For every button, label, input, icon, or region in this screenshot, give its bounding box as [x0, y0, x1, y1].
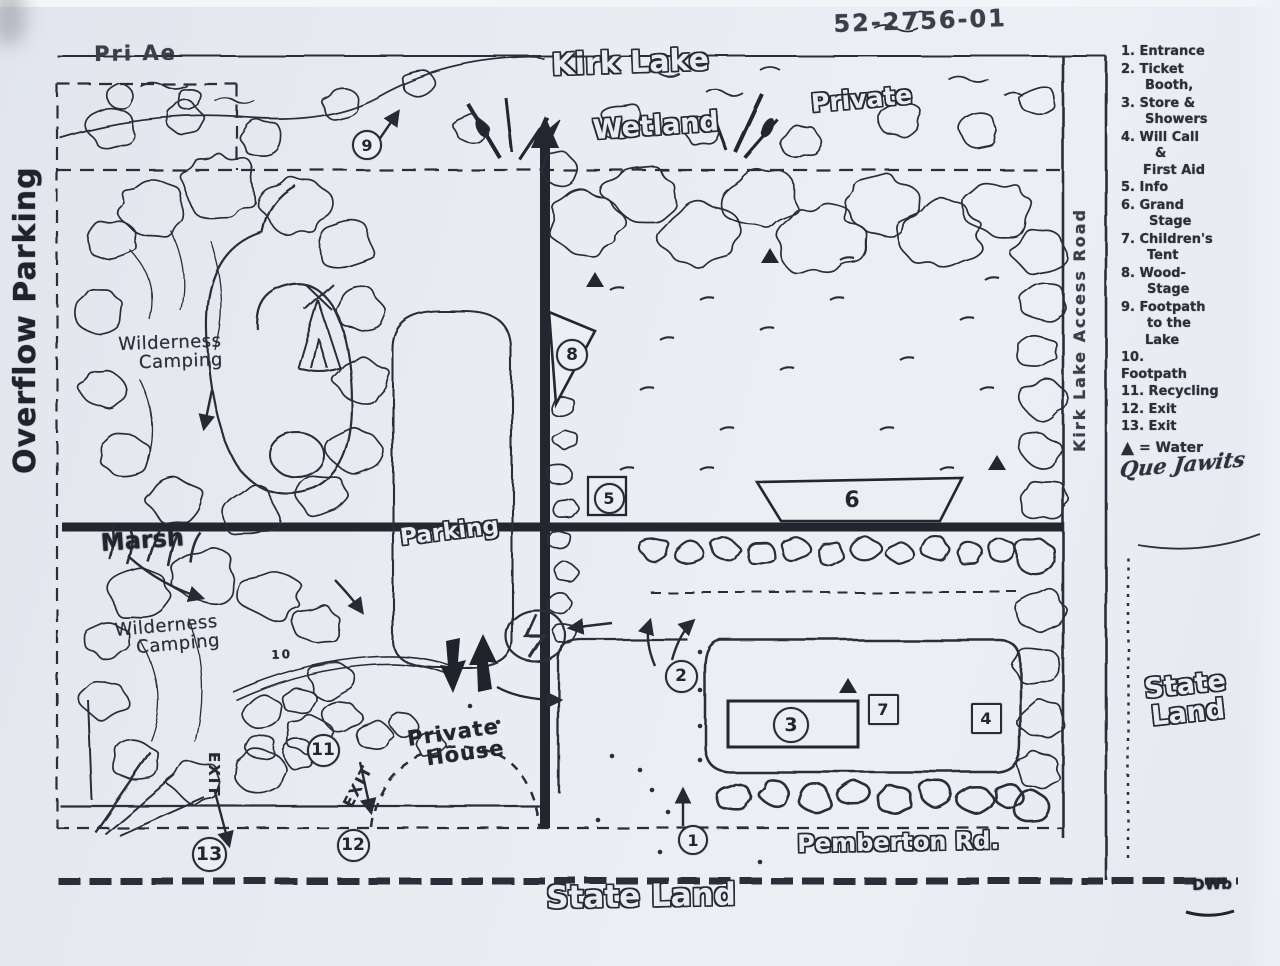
label-kirk-lake: Kirk Lake — [551, 45, 710, 82]
grass-mark — [700, 297, 714, 300]
map-frame — [57, 56, 1238, 881]
water-triangle — [586, 272, 604, 287]
legend-item-childrens-tent: 7. Children'sTent — [1121, 232, 1251, 265]
legend-item-will-call-first-aid: 4. Will Call&First Aid — [1121, 130, 1251, 180]
tree-blob — [243, 695, 282, 729]
legend-line: Stage — [1147, 282, 1251, 299]
label-state-land-south: State Land — [546, 879, 736, 915]
tree-blob — [819, 542, 843, 565]
ink-dot — [610, 754, 614, 758]
tree-blob — [676, 542, 705, 565]
label-state-land-east: StateLand — [1143, 667, 1230, 731]
tree-blob — [717, 784, 750, 810]
tree-blob — [963, 184, 1032, 238]
tree-blob — [108, 569, 171, 617]
label-line: Overflow Parking — [10, 166, 41, 474]
tree-blob — [336, 286, 386, 331]
grass-mark — [960, 317, 974, 320]
legend-line: Footpath — [1121, 367, 1251, 384]
grass-mark — [980, 387, 994, 390]
tree-blob — [711, 537, 740, 561]
water-triangle — [761, 248, 779, 263]
legend-line: 3. Store & — [1121, 96, 1251, 113]
tree-blob — [1019, 433, 1061, 468]
water-triangle-icon: ▲ — [1121, 438, 1134, 458]
tree-blob — [1015, 539, 1055, 575]
tree-blob — [245, 736, 275, 759]
map-marker-7: 7 — [868, 694, 899, 725]
ink-dot — [638, 768, 642, 772]
tree-blob — [837, 781, 870, 804]
tree-blob — [101, 435, 151, 477]
label-footpath-10-label: 10 — [271, 648, 292, 662]
tree-blob — [551, 396, 574, 416]
label-line: Kirk Lake — [551, 45, 710, 82]
label-line: Pemberton Rd. — [797, 828, 1000, 856]
tree-blob — [78, 682, 130, 722]
grass-mark — [720, 427, 734, 430]
tree-blob — [553, 431, 578, 450]
legend-line: 12. Exit — [1121, 402, 1251, 419]
label-line: 10 — [271, 648, 292, 662]
tree-blob — [332, 356, 389, 404]
ink-dot — [468, 704, 472, 708]
tree-blob — [292, 605, 338, 643]
tree-blob — [282, 687, 316, 713]
tree-blob — [235, 748, 286, 794]
tree-blob — [325, 428, 385, 475]
tree-blob — [958, 543, 983, 565]
tree-blob — [356, 720, 393, 748]
tree-blob — [1020, 283, 1067, 321]
ink-dot — [698, 758, 702, 762]
ink-dot — [758, 860, 762, 864]
tree-blob — [1016, 752, 1060, 789]
signature: Que Jawits — [1119, 451, 1251, 479]
label-line: 52-2756-01 — [833, 6, 1007, 37]
bold-arrows — [440, 634, 497, 693]
tree-blob — [657, 200, 742, 269]
ink-dot — [698, 688, 702, 692]
tree-blob — [758, 779, 788, 806]
signature-flourish — [1138, 534, 1260, 549]
tree-blob — [957, 787, 994, 814]
tree-blob — [896, 198, 982, 267]
map-marker-4: 4 — [971, 703, 1002, 734]
legend-item-store-showers: 3. Store &Showers — [1121, 96, 1251, 129]
tree-blob — [1018, 86, 1054, 115]
grass-mark — [780, 367, 794, 370]
tree-blob — [548, 531, 570, 548]
water-triangle — [839, 678, 857, 693]
tree-blob — [295, 476, 348, 516]
grass-mark — [620, 467, 634, 470]
legend-item-grand-stage: 6. GrandStage — [1121, 198, 1251, 231]
label-marsh: Marsh — [100, 525, 185, 556]
legend: 1. Entrance2. TicketBooth,3. Store &Show… — [1121, 44, 1251, 479]
legend-item-wood-stage: 8. Wood-Stage — [1121, 266, 1251, 299]
label-line: EXIT — [205, 752, 221, 798]
grass-mark — [700, 467, 714, 470]
grass-mark — [660, 337, 674, 340]
tree-blob — [549, 190, 625, 257]
legend-line: 5. Info — [1121, 180, 1251, 197]
ink-dot — [698, 724, 702, 728]
artist-mark-scribble — [1186, 911, 1234, 915]
tree-blob — [850, 536, 881, 559]
tree-blob — [776, 204, 865, 274]
map-marker-8: 8 — [556, 339, 588, 371]
legend-item-recycling: 11. Recycling — [1121, 384, 1251, 401]
tree-blob — [547, 465, 572, 483]
tree-blob — [322, 702, 363, 732]
legend-line: 1. Entrance — [1121, 44, 1251, 61]
legend-item-ticket-booth: 2. TicketBooth, — [1121, 62, 1251, 95]
map-marker-12: 12 — [337, 829, 370, 862]
water-triangle — [988, 455, 1006, 470]
tree-blob — [307, 662, 355, 700]
legend-line: Stage — [1149, 214, 1251, 231]
label-line: DWb — [1192, 877, 1232, 894]
legend-line: First Aid — [1143, 163, 1251, 180]
ink-dot — [650, 788, 654, 792]
label-private-partial: Pri Ae — [94, 43, 177, 66]
legend-line: 4. Will Call — [1121, 130, 1251, 147]
tree-blob — [1017, 699, 1065, 738]
tree-blob — [553, 498, 579, 517]
legend-line: 13. Exit — [1121, 419, 1251, 436]
label-line: Marsh — [100, 525, 185, 556]
tree-blob — [960, 114, 997, 148]
legend-line: Showers — [1145, 112, 1251, 129]
legend-item-footpath-to-lake: 9. Footpathto theLake — [1121, 300, 1251, 350]
tree-blob — [885, 542, 915, 564]
map-marker-13: 13 — [192, 837, 227, 872]
tree-blob — [181, 155, 255, 218]
legend-item-footpath: 10.Footpath — [1121, 350, 1251, 383]
ink-dot — [698, 650, 702, 654]
legend-line: Booth, — [1145, 78, 1251, 95]
map-marker-9: 9 — [352, 130, 382, 160]
grass-mark — [900, 357, 914, 360]
legend-line: 10. — [1121, 350, 1251, 367]
tree-blob — [547, 593, 573, 615]
legend-line: 11. Recycling — [1121, 384, 1251, 401]
tree-blob — [747, 542, 774, 564]
tree-blob — [1018, 378, 1069, 421]
legend-line: 2. Ticket — [1121, 62, 1251, 79]
map-marker-2: 2 — [665, 660, 698, 693]
tree-blob — [257, 177, 334, 236]
tree-blob — [85, 108, 135, 148]
map-marker-1: 1 — [678, 825, 708, 855]
legend-line: to the — [1147, 316, 1251, 333]
tree-blob — [601, 167, 676, 222]
legend-item-entrance: 1. Entrance — [1121, 44, 1251, 61]
legend-line: Lake — [1145, 333, 1251, 350]
tree-blob — [921, 536, 950, 561]
tree-blob — [117, 180, 183, 237]
label-ref-number: 52-2756-01 — [833, 6, 1007, 37]
legend-item-exit-12: 12. Exit — [1121, 402, 1251, 419]
tree-blob — [844, 173, 919, 236]
legend-line: 7. Children's — [1121, 232, 1251, 249]
main-roads — [62, 116, 1063, 828]
tree-blob — [320, 222, 374, 267]
hand-drawn-festival-map-scan: 52-2756-01Kirk LakeWetlandPrivatePri AeO… — [0, 0, 1280, 966]
tree-blob — [171, 547, 233, 603]
tree-blob — [78, 372, 128, 409]
label-pemberton-rd: Pemberton Rd. — [797, 828, 1000, 856]
tree-blob — [798, 783, 831, 812]
tree-blob — [639, 540, 669, 563]
map-marker-3: 3 — [773, 707, 809, 743]
tree-blob — [780, 124, 822, 156]
label-exit-west: EXIT — [205, 752, 221, 798]
map-marker-11: 11 — [307, 734, 340, 767]
tree-blob — [989, 539, 1015, 562]
tree-blob — [107, 83, 133, 108]
tree-blob — [240, 120, 281, 156]
legend-line: 8. Wood- — [1121, 266, 1251, 283]
legend-item-info: 5. Info — [1121, 180, 1251, 197]
legend-line: & — [1155, 146, 1251, 163]
grass-mark — [985, 277, 999, 280]
tree-blob — [878, 785, 911, 813]
legend-line: 9. Footpath — [1121, 300, 1251, 317]
tree-blob — [555, 561, 579, 581]
label-line: State Land — [546, 879, 736, 915]
ink-dot — [658, 850, 662, 854]
tree-blob — [920, 781, 952, 808]
ink-dot — [666, 810, 670, 814]
tree-clusters — [76, 71, 1069, 820]
grass-mark — [640, 387, 654, 390]
grass-mark — [940, 467, 954, 470]
grass-mark — [830, 297, 844, 300]
map-marker-5: 5 — [594, 483, 625, 514]
grass-mark — [760, 327, 774, 330]
tree-blob — [1017, 335, 1056, 366]
tree-blob — [76, 290, 123, 335]
tree-blob — [781, 537, 811, 560]
grass-mark — [840, 257, 854, 260]
tree-blob — [721, 170, 798, 228]
label-line: Pri Ae — [94, 43, 177, 66]
map-ink-drawing — [0, 0, 1280, 966]
tree-blob — [236, 572, 301, 622]
tree-blob — [403, 71, 436, 97]
tree-blob — [144, 476, 202, 522]
legend-item-exit-13: 13. Exit — [1121, 419, 1251, 436]
label-line: Camping — [139, 351, 224, 373]
legend-line: Tent — [1147, 248, 1251, 265]
grass-mark — [610, 287, 624, 290]
tree-blob — [1016, 590, 1069, 632]
label-overflow-parking: Overflow Parking — [10, 166, 41, 474]
legend-line: 6. Grand — [1121, 198, 1251, 215]
ink-dot — [596, 818, 600, 822]
label-artist-mark: DWb — [1192, 877, 1232, 894]
label-access-road: Kirk Lake Access Road — [1072, 208, 1089, 452]
grass-mark — [880, 427, 894, 430]
label-line: Kirk Lake Access Road — [1072, 208, 1089, 452]
tree-blob — [321, 88, 357, 120]
label-wilderness-camping-north: WildernessCamping — [118, 332, 223, 373]
map-marker-6: 6 — [837, 485, 867, 515]
